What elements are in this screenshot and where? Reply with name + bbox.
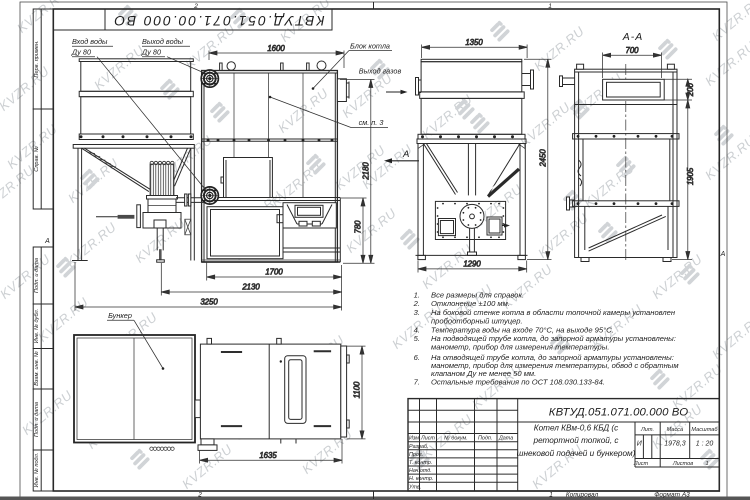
svg-text:700: 700 [625, 46, 639, 55]
svg-text:6.: 6. [414, 353, 420, 362]
svg-text:1978,3: 1978,3 [664, 441, 686, 448]
svg-text:Инв. № дубл.: Инв. № дубл. [34, 309, 40, 343]
svg-text:Изм.: Изм. [409, 436, 421, 442]
svg-text:Лист: Лист [633, 461, 649, 467]
svg-text:Котел КВм-0,6 КБД (с: Котел КВм-0,6 КБД (с [534, 423, 619, 432]
svg-text:Взам. инв. №: Взам. инв. № [34, 351, 40, 386]
svg-text:манометр, прибор для измерения: манометр, прибор для измерения температу… [431, 342, 609, 351]
svg-text:1100: 1100 [353, 381, 362, 398]
svg-text:Ду 80: Ду 80 [71, 48, 91, 57]
svg-text:Блок котла: Блок котла [350, 42, 390, 51]
svg-text:КВТУД.051.071.00.000 ВО: КВТУД.051.071.00.000 ВО [549, 406, 688, 418]
svg-text:Ду 80: Ду 80 [141, 48, 161, 57]
svg-text:5.: 5. [414, 334, 420, 343]
svg-text:1 : 20: 1 : 20 [696, 441, 714, 448]
svg-text:1700: 1700 [265, 268, 283, 277]
svg-text:1635: 1635 [259, 451, 277, 460]
svg-text:3.: 3. [414, 308, 420, 317]
svg-text:Подп. и дата: Подп. и дата [34, 258, 40, 293]
svg-text:2450: 2450 [538, 149, 547, 168]
svg-text:ретортной топкой, с: ретортной топкой, с [533, 436, 619, 445]
svg-text:Масса: Масса [667, 427, 684, 433]
svg-text:Бункер: Бункер [108, 311, 132, 320]
svg-text:Лист: Лист [420, 436, 435, 442]
svg-text:1600: 1600 [267, 44, 285, 53]
svg-text:А-А: А-А [622, 31, 644, 43]
svg-text:1: 1 [705, 461, 708, 467]
svg-text:№ докум.: № докум. [444, 436, 468, 442]
svg-text:780: 780 [354, 220, 363, 234]
svg-text:Вход воды: Вход воды [72, 37, 108, 46]
svg-text:Формат А3: Формат А3 [654, 492, 690, 499]
svg-text:пробоотборный штуцер.: пробоотборный штуцер. [431, 316, 523, 325]
svg-text:Инв. № подл.: Инв. № подл. [34, 453, 40, 488]
svg-text:1: 1 [548, 3, 552, 10]
svg-text:3250: 3250 [200, 298, 218, 307]
svg-text:1905: 1905 [686, 167, 695, 185]
svg-text:2180: 2180 [361, 162, 370, 181]
svg-text:Копировал: Копировал [566, 492, 599, 499]
svg-text:1: 1 [549, 492, 553, 499]
svg-text:шнековой подачей и бункером): шнековой подачей и бункером) [517, 449, 636, 458]
svg-text:Нач.отд.: Нач.отд. [409, 468, 432, 474]
svg-text:2: 2 [197, 492, 202, 499]
svg-text:Подп.: Подп. [478, 436, 492, 442]
svg-text:Масштаб: Масштаб [691, 427, 718, 433]
svg-text:1350: 1350 [465, 38, 483, 47]
svg-text:Дата: Дата [498, 436, 513, 442]
svg-text:Перв. примен.: Перв. примен. [34, 40, 40, 77]
svg-text:КВТУД.051.071.00.000 ВО: КВТУД.051.071.00.000 ВО [112, 13, 324, 28]
svg-text:Остальные требования по ОСТ 10: Остальные требования по ОСТ 108.030.133-… [431, 378, 605, 387]
svg-text:Т. контр.: Т. контр. [409, 460, 432, 466]
svg-text:1290: 1290 [463, 260, 481, 269]
svg-text:Листов: Листов [672, 461, 693, 467]
svg-text:Н. контр.: Н. контр. [409, 476, 433, 482]
svg-text:200: 200 [686, 83, 695, 98]
svg-text:7.: 7. [414, 378, 420, 387]
svg-text:А: А [44, 238, 50, 245]
svg-text:2130: 2130 [241, 283, 260, 292]
svg-text:Подп. и дата: Подп. и дата [34, 402, 40, 437]
svg-text:Разраб.: Разраб. [409, 444, 429, 450]
svg-text:Утв.: Утв. [408, 484, 421, 490]
svg-text:А: А [720, 251, 726, 258]
svg-text:Пров.: Пров. [409, 452, 423, 458]
svg-text:Выход газов: Выход газов [359, 67, 402, 76]
svg-text:А: А [402, 149, 409, 160]
svg-text:Справ. №: Справ. № [34, 146, 40, 171]
svg-text:Выход воды: Выход воды [142, 37, 184, 46]
svg-text:Лит.: Лит. [640, 427, 654, 433]
